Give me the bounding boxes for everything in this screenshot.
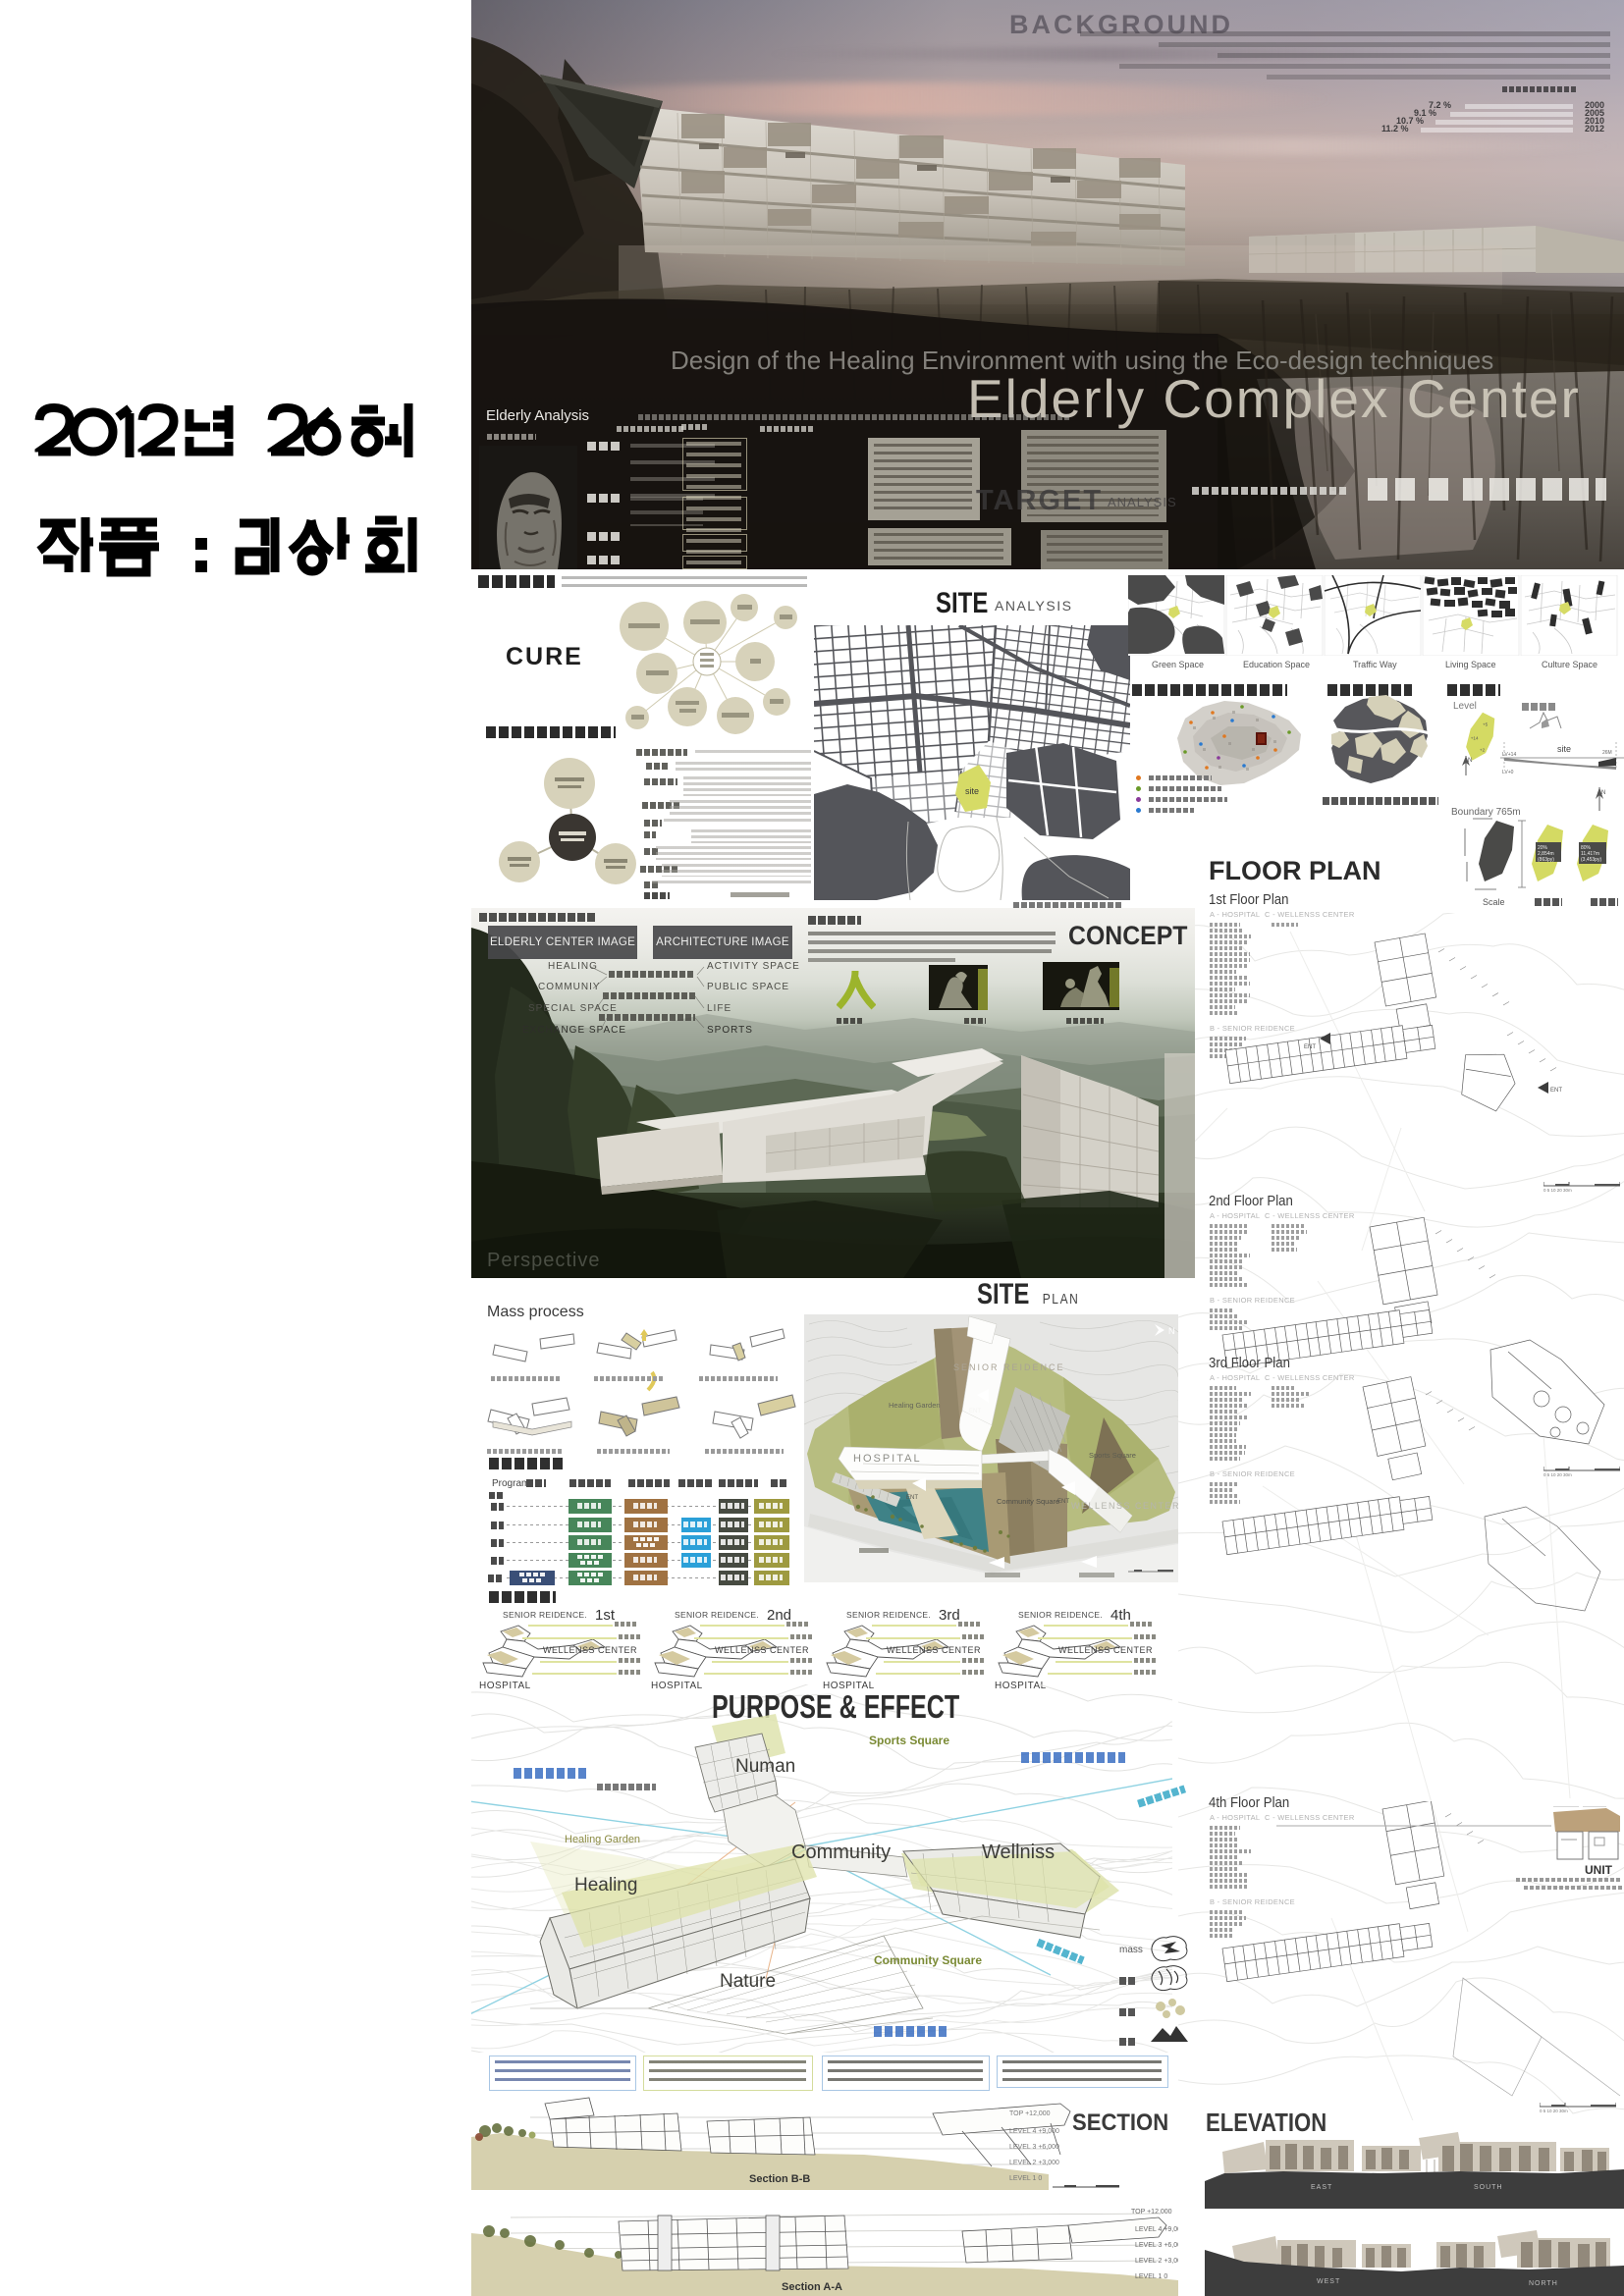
svg-text:N: N	[1601, 790, 1605, 796]
svg-text:LV+0: LV+0	[1502, 770, 1514, 775]
svg-text:Section A-A: Section A-A	[782, 2281, 842, 2293]
svg-text:LEVEL 1 0: LEVEL 1 0	[1135, 2273, 1167, 2280]
svg-text:LEVEL 2 +3,000: LEVEL 2 +3,000	[1009, 2160, 1059, 2166]
svg-text:NORTH: NORTH	[1529, 2280, 1558, 2287]
svg-text:HOSPITAL: HOSPITAL	[853, 1453, 922, 1465]
svg-text:ENT: ENT	[1057, 1499, 1069, 1505]
svg-text:TOP +12,000: TOP +12,000	[1009, 2110, 1051, 2117]
svg-text:Community Square: Community Square	[997, 1497, 1059, 1506]
svg-text:N: N	[1468, 758, 1472, 764]
svg-text:Section B-B: Section B-B	[749, 2173, 810, 2185]
svg-text:0 5 10 20 30m: 0 5 10 20 30m	[1540, 2109, 1568, 2112]
svg-text:N: N	[1168, 1326, 1175, 1336]
svg-text:+14: +14	[1471, 735, 1479, 740]
svg-text:WELLENSS CENTER: WELLENSS CENTER	[1071, 1501, 1178, 1511]
svg-text:(3,453py): (3,453py)	[1581, 857, 1601, 863]
svg-text:EAST: EAST	[1311, 2184, 1332, 2191]
svg-text:+2: +2	[1480, 748, 1486, 753]
svg-text:ENT: ENT	[969, 1409, 981, 1415]
svg-text:Healing Garden: Healing Garden	[889, 1401, 941, 1410]
svg-text:LEVEL 2 +3,000: LEVEL 2 +3,000	[1135, 2258, 1178, 2265]
svg-text:Sports Square: Sports Square	[1089, 1451, 1136, 1460]
svg-text:site: site	[1557, 744, 1571, 754]
svg-text:LEVEL 4 +9,000: LEVEL 4 +9,000	[1009, 2128, 1059, 2135]
svg-text:0 5 10 20 30m: 0 5 10 20 30m	[1543, 1188, 1572, 1192]
svg-text:SOUTH: SOUTH	[1474, 2184, 1503, 2191]
svg-text:WEST: WEST	[1317, 2278, 1340, 2285]
svg-text:LEVEL 3 +6,000: LEVEL 3 +6,000	[1009, 2144, 1059, 2151]
svg-text:LV+14: LV+14	[1502, 752, 1516, 758]
svg-text:LEVEL 4 +9,000: LEVEL 4 +9,000	[1135, 2226, 1178, 2233]
svg-text:ENT: ENT	[1304, 1044, 1316, 1050]
svg-text:site: site	[965, 786, 979, 796]
svg-text:+5: +5	[1483, 722, 1489, 727]
svg-text:SENIOR REIDENCE: SENIOR REIDENCE	[953, 1362, 1065, 1372]
svg-text:26M: 26M	[1602, 750, 1612, 756]
svg-text:LEVEL 3 +6,000: LEVEL 3 +6,000	[1135, 2242, 1178, 2249]
svg-text:ENT: ENT	[906, 1495, 918, 1501]
svg-text:(863py): (863py)	[1538, 857, 1554, 863]
svg-text:ENT: ENT	[1550, 1088, 1562, 1094]
svg-text:TOP +12,000: TOP +12,000	[1131, 2209, 1172, 2216]
svg-text:LEVEL 1 0: LEVEL 1 0	[1009, 2175, 1042, 2182]
